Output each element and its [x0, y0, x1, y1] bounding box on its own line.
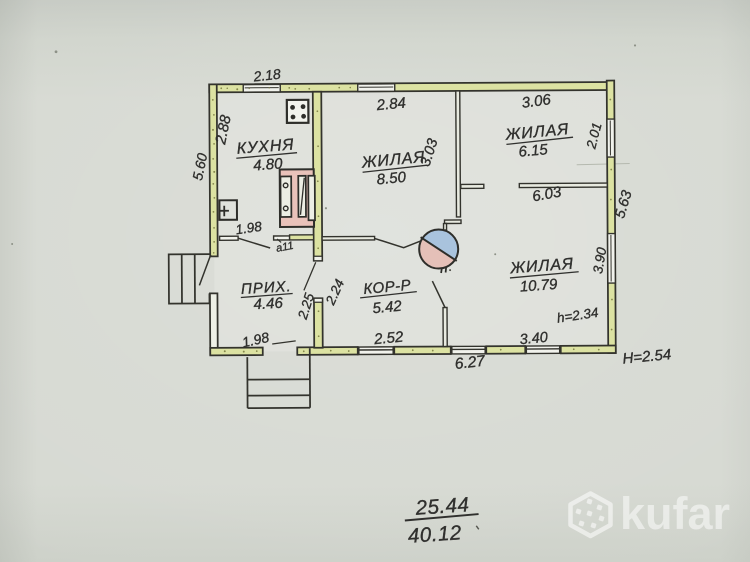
- svg-text:kufar: kufar: [620, 488, 730, 539]
- svg-text:5.42: 5.42: [372, 298, 403, 318]
- svg-text:3.40: 3.40: [519, 330, 549, 349]
- svg-text:2.52: 2.52: [372, 328, 404, 348]
- svg-text:8.50: 8.50: [376, 169, 407, 189]
- svg-text:Н=2.54: Н=2.54: [622, 346, 672, 367]
- svg-text:6.27: 6.27: [454, 353, 487, 373]
- svg-text:10.79: 10.79: [519, 276, 558, 296]
- svg-text:40.12: 40.12: [407, 521, 462, 548]
- svg-text:6.15: 6.15: [518, 141, 549, 161]
- svg-text:2.84: 2.84: [375, 94, 407, 114]
- svg-text:4.46: 4.46: [253, 295, 284, 314]
- svg-text:4.80: 4.80: [253, 155, 284, 174]
- svg-text:2.18: 2.18: [252, 66, 282, 85]
- svg-text:5.60: 5.60: [189, 152, 210, 182]
